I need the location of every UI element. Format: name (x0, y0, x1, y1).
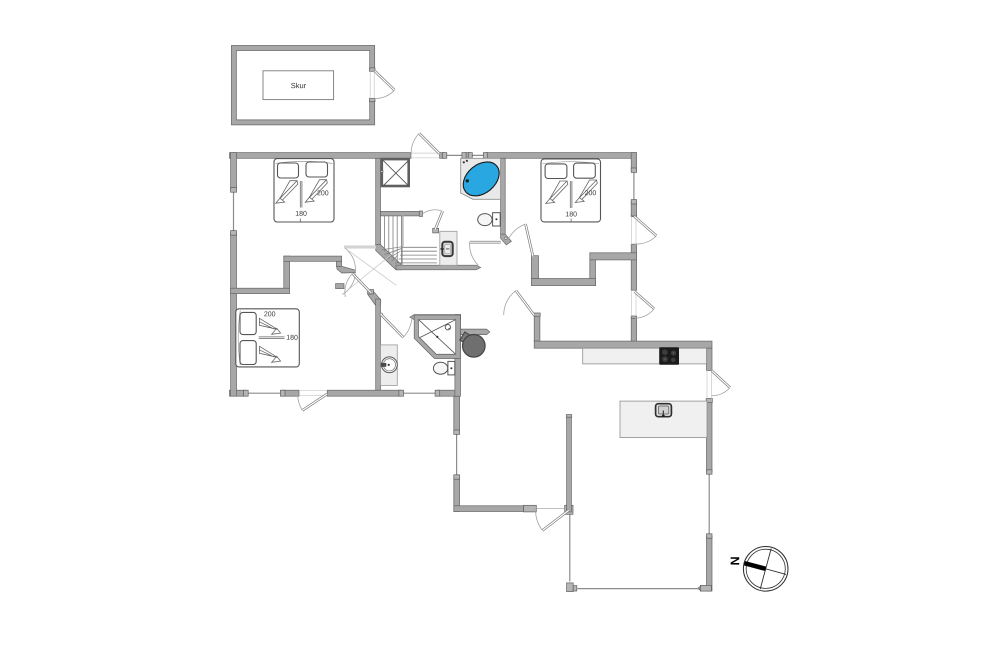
svg-text:180: 180 (565, 211, 577, 218)
svg-text:200: 200 (264, 311, 276, 318)
svg-text:200: 200 (317, 190, 329, 197)
svg-text:200: 200 (585, 190, 597, 197)
svg-text:180: 180 (286, 335, 298, 342)
svg-text:Skur: Skur (291, 81, 307, 90)
svg-text:N: N (728, 556, 742, 565)
svg-text:180: 180 (295, 211, 307, 218)
